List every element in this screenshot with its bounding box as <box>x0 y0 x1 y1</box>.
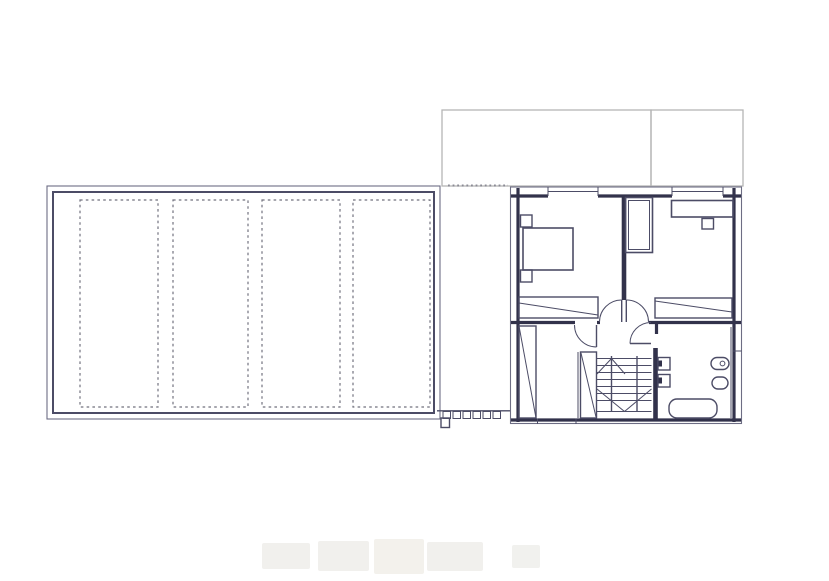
skylight-panel <box>353 200 430 407</box>
roof-outline-left <box>442 110 651 186</box>
watermark-blobs <box>262 539 540 574</box>
bed-icon <box>523 228 573 270</box>
pergola-posts <box>443 412 501 419</box>
floorplan-canvas <box>0 0 829 581</box>
bathroom-door <box>630 323 651 344</box>
chair-icon <box>702 219 714 230</box>
adjacent-roof-outlines <box>442 110 743 186</box>
wardrobe-band-icon <box>519 297 598 318</box>
watermark-blob <box>374 539 424 574</box>
left-room-door <box>575 325 597 347</box>
roof-outline-right <box>651 110 743 186</box>
pergola-post-icon <box>453 412 461 419</box>
window-right-bedroom <box>672 187 723 196</box>
nightstand-icon <box>521 215 533 227</box>
nightstand-icon <box>521 270 533 282</box>
radiator-icon <box>658 358 670 371</box>
window-left-bedroom <box>548 187 598 196</box>
garage-roof-plan <box>47 186 440 419</box>
watermark-blob <box>262 543 310 569</box>
upper-floor-plan <box>511 187 742 424</box>
closet-diagonal-icon <box>581 352 597 418</box>
bathroom <box>658 358 729 419</box>
wardrobe-band-icon <box>655 298 732 318</box>
staircase-icon <box>597 356 652 412</box>
connector-lines <box>437 186 510 428</box>
desk-icon <box>672 201 734 218</box>
pergola-post-icon <box>463 412 471 419</box>
floorplan-drawing <box>0 0 829 581</box>
closets <box>519 326 597 418</box>
door-swing-arc <box>630 323 651 344</box>
wardrobe-icon <box>626 198 653 253</box>
garage-outer-border <box>47 186 440 419</box>
bedroom-left <box>519 215 598 318</box>
door-swing-arc <box>599 300 621 322</box>
watermark-blob <box>427 542 483 571</box>
garage-inner-border <box>53 192 434 413</box>
pergola-post-icon <box>473 412 481 419</box>
skylight-panel <box>173 200 248 407</box>
bidet-icon <box>712 377 728 389</box>
door-swing-arc <box>626 300 648 322</box>
closet-diagonal-icon <box>519 326 536 418</box>
pergola-post-icon <box>483 412 491 419</box>
doors <box>575 300 652 347</box>
windows <box>538 187 742 424</box>
radiator-icon <box>658 375 670 388</box>
bathtub-icon <box>669 399 717 418</box>
door-swing-arc <box>575 325 597 347</box>
skylight-panel <box>262 200 340 407</box>
skylight-panel <box>80 200 158 407</box>
watermark-blob <box>512 545 540 568</box>
pergola-post-icon <box>493 412 501 419</box>
double-swing-door <box>599 300 648 322</box>
bedroom-right <box>626 198 734 319</box>
toilet-icon <box>711 358 729 370</box>
watermark-blob <box>318 541 369 571</box>
corner-post-icon <box>441 418 450 428</box>
